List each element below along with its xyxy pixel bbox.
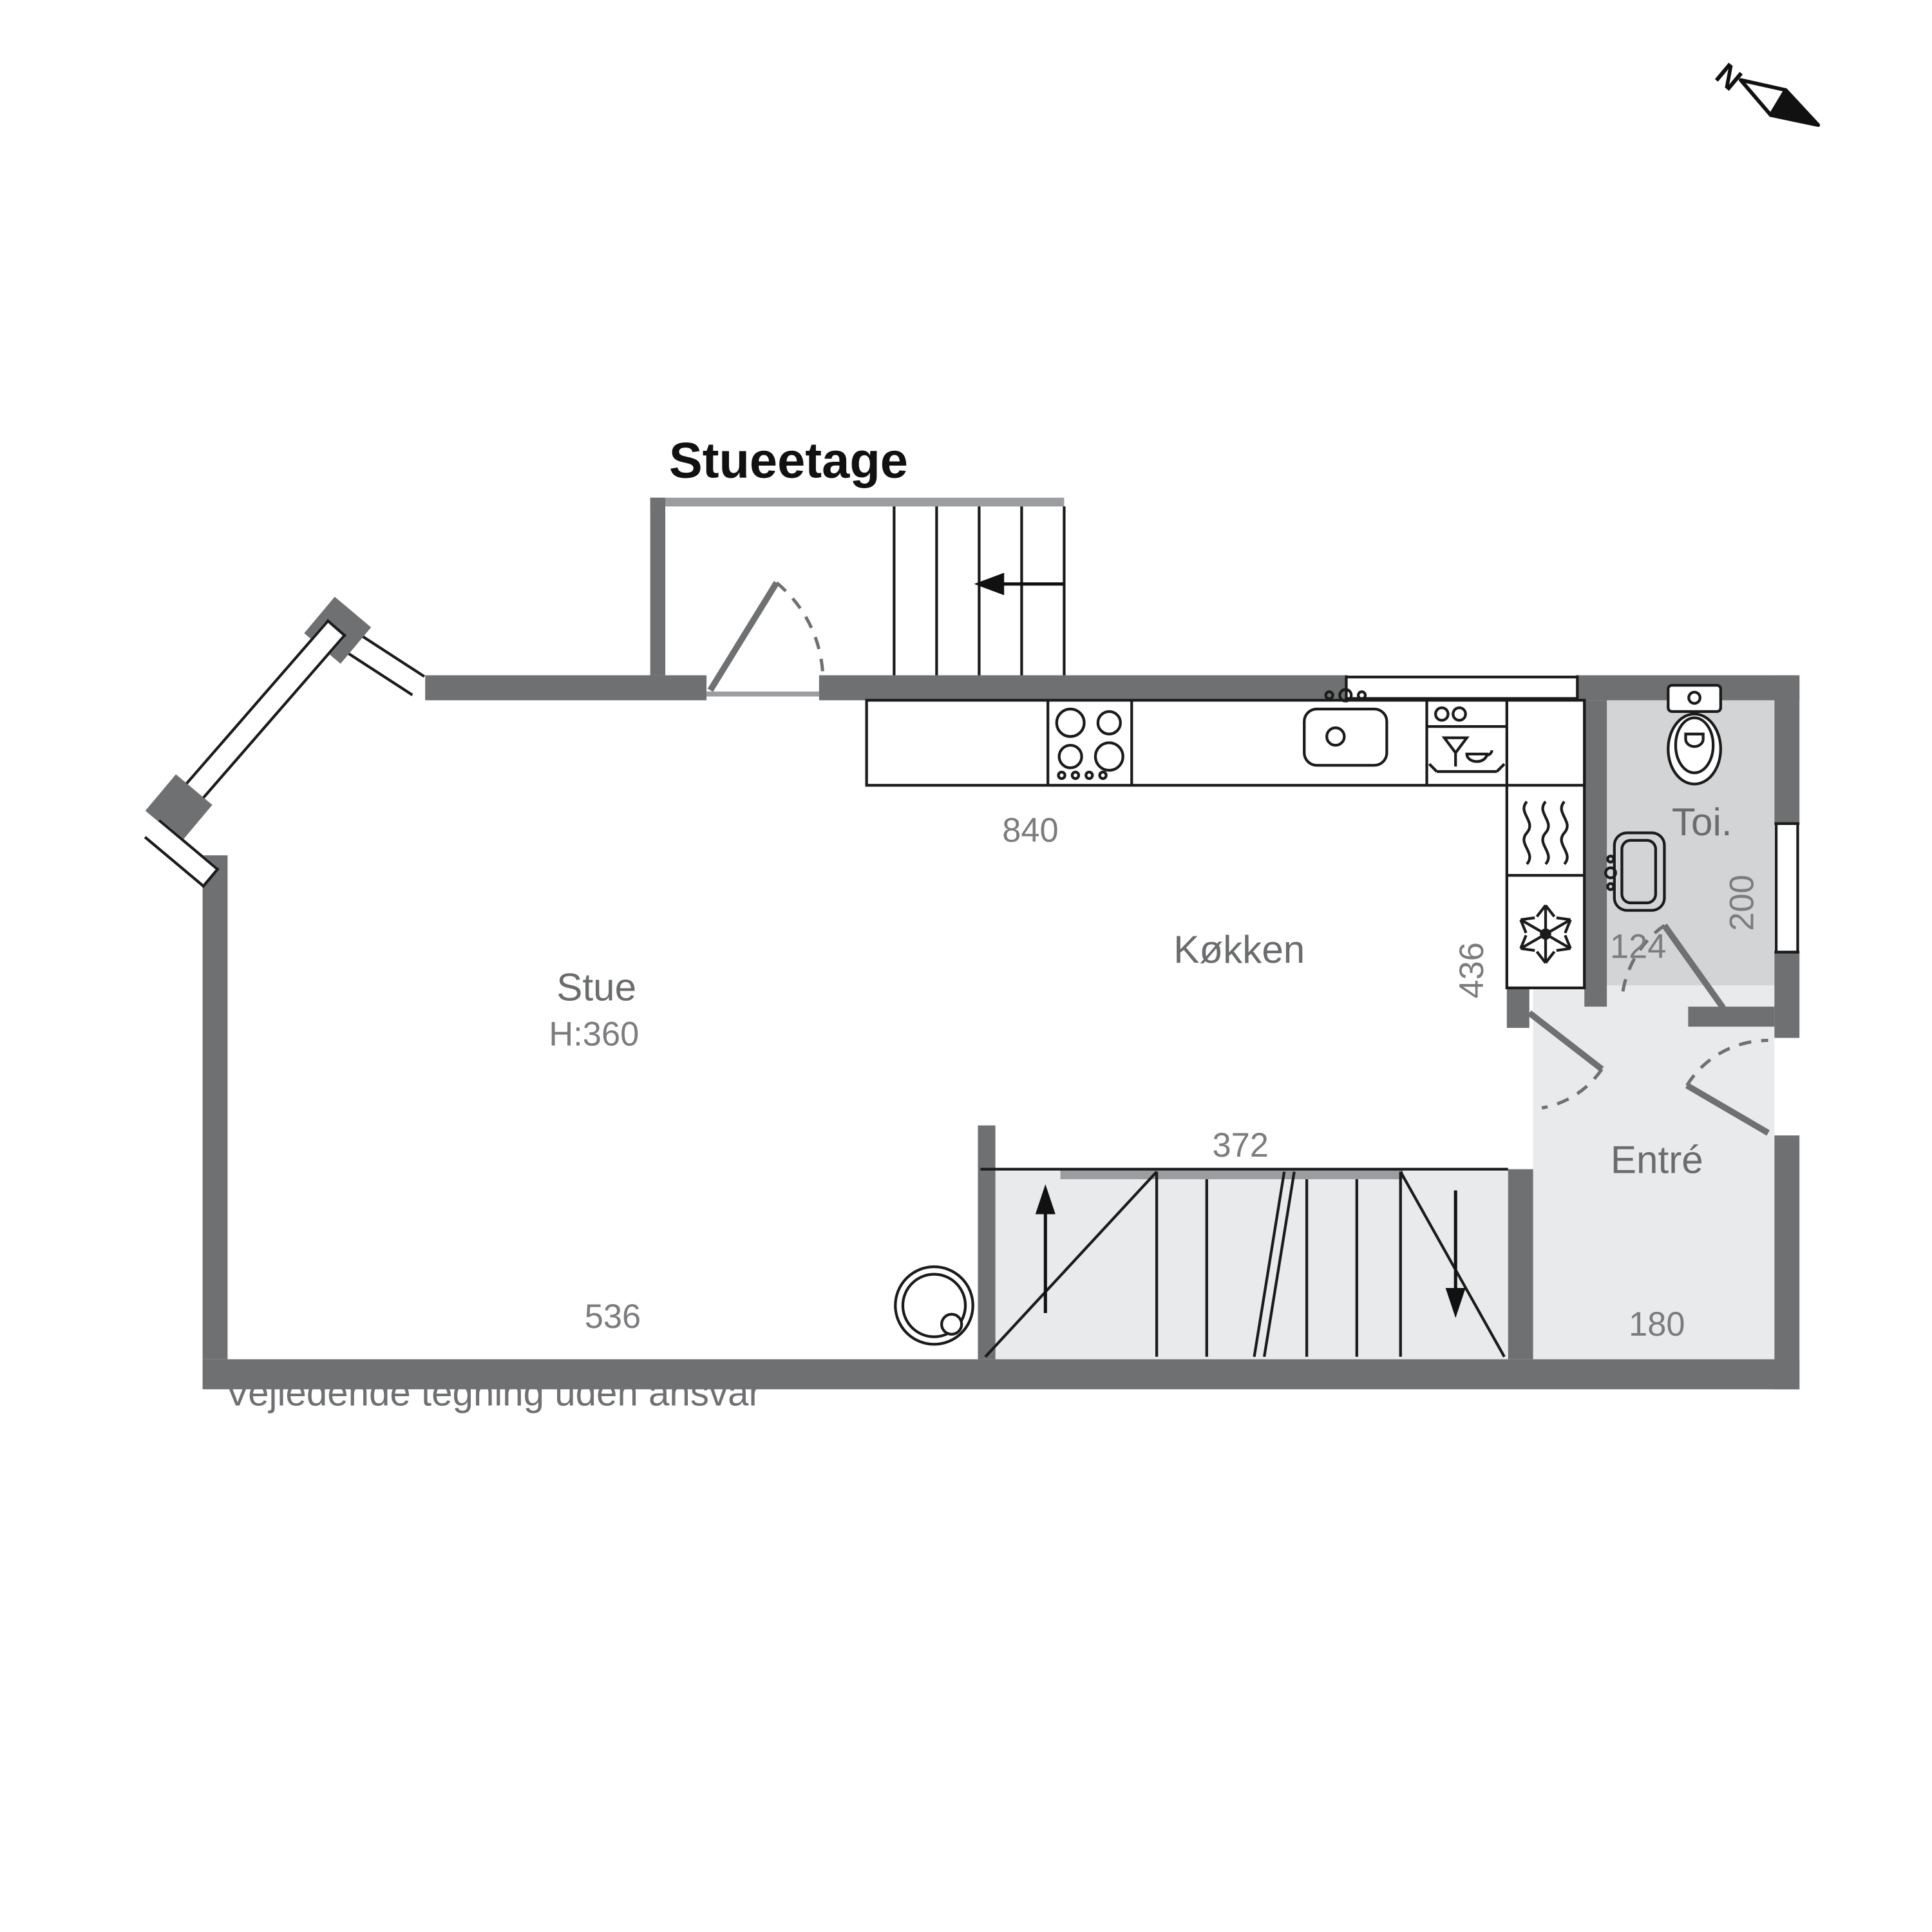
room-label-entre: Entré [1611, 1138, 1703, 1181]
dimension-toilet-depth: 200 [1723, 875, 1761, 931]
room-label-toilet: Toi. [1672, 800, 1732, 844]
room-label-kokken: Køkken [1173, 928, 1305, 971]
right-wall-lower [1774, 1135, 1799, 1389]
top-wall-left [425, 676, 706, 701]
staircase-floor [980, 1170, 1508, 1359]
toilet-icon [1668, 685, 1721, 784]
landing-top-wall [650, 498, 1065, 507]
wood-stove-icon [895, 1267, 972, 1344]
stairs-entre-wall [1508, 1170, 1533, 1359]
window [172, 619, 346, 815]
bay-corner [144, 597, 426, 888]
floor-plan: N Stueetage Stue H:360 Køkken Toi. Entré… [0, 0, 1932, 1932]
north-arrow-icon: N [1709, 57, 1818, 125]
dimension-toilet-door-width: 124 [1610, 928, 1666, 965]
toilet-entre-wall [1688, 1007, 1774, 1027]
page-title: Stueetage [669, 433, 908, 489]
stove-nook-wall [978, 1126, 995, 1359]
room-label-stue: Stue [556, 965, 636, 1009]
washbasin-icon [1605, 833, 1664, 910]
top-wall-middle [819, 676, 1345, 701]
dimension-kokken-width: 840 [1002, 812, 1058, 849]
dimension-stue-width: 536 [585, 1298, 641, 1336]
right-wall-upper [1774, 676, 1799, 823]
kitchen-window [1345, 676, 1578, 701]
right-wall-middle [1774, 953, 1799, 1038]
toilet-window [1774, 823, 1799, 953]
kitchen-entre-wall-stub [1507, 988, 1529, 1028]
left-wall [203, 855, 228, 1359]
dimension-kokken-depth: 436 [1454, 942, 1491, 998]
ceiling-height-label: H:360 [549, 1016, 639, 1053]
upper-landing-floor [665, 506, 1064, 675]
landing-left-wall [650, 498, 665, 676]
dimension-stairs-width: 372 [1212, 1127, 1268, 1164]
dimension-entre-width: 180 [1629, 1306, 1685, 1343]
north-label: N [1709, 57, 1748, 98]
disclaimer-caption: Vejledende tegning uden ansvar [225, 1372, 761, 1414]
kitchen-toilet-wall [1584, 700, 1607, 1007]
